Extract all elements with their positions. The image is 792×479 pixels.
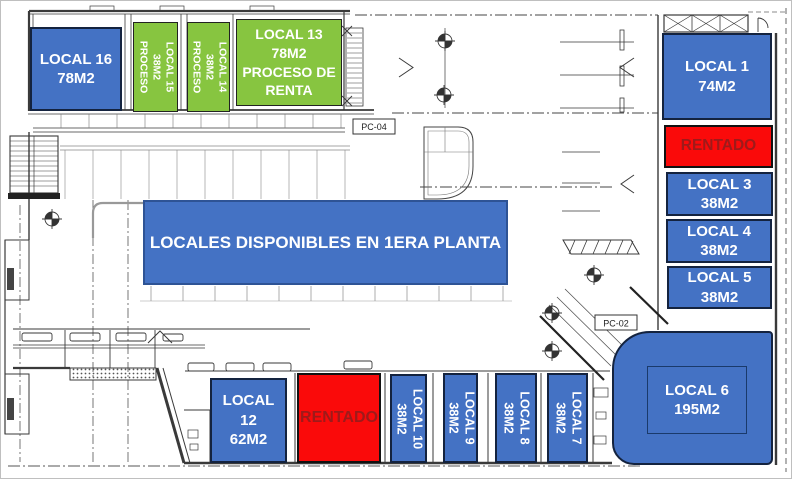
unit-rentado-bottom: RENTADO [297,373,381,463]
banner-title: LOCALES DISPONIBLES EN 1ERA PLANTA [150,233,501,253]
unit-local-6: LOCAL 6 195M2 [612,331,773,465]
unit-name: LOCAL 1 [685,57,749,77]
unit-name: LOCAL 6 [665,381,729,401]
unit-local-16: LOCAL 16 78M2 [30,27,122,111]
unit-local-14: LOCAL 14 38M2 PROCESO [187,22,230,112]
unit-name: LOCAL 16 [40,50,112,70]
unit-area: 38M2 [445,375,461,461]
rented-label: RENTADO [681,136,757,156]
unit-area: 78M2 [57,69,95,89]
availability-banner: LOCALES DISPONIBLES EN 1ERA PLANTA [143,200,508,285]
unit-name: LOCAL 3 [688,175,752,195]
unit-note: PROCESO DE RENTA [237,63,341,101]
unit-area: 78M2 [271,44,306,63]
unit-local-3: LOCAL 3 38M2 [666,172,773,216]
unit-name: LOCAL 10 [409,376,425,461]
unit-local-5: LOCAL 5 38M2 [667,266,772,309]
unit-local-1: LOCAL 1 74M2 [662,33,772,120]
unit-area: 62M2 [230,430,268,450]
unit-name: LOCAL 15 [162,24,175,110]
unit-local-4: LOCAL 4 38M2 [666,219,772,263]
unit-name: LOCAL 12 [219,391,279,430]
rotated-text: LOCAL 10 38M2 [393,376,424,461]
floor-plan: PC-04 PC-02 LOCAL 16 78M2 LOCAL 15 38M2 … [0,0,792,479]
rotated-text: LOCAL 8 38M2 [500,375,531,461]
label-pc-04: PC-04 [361,122,387,132]
unit-note: PROCESO [189,24,202,110]
label-pc-02: PC-02 [603,319,629,329]
unit-area: 38M2 [149,24,162,110]
unit-area: 38M2 [393,376,409,461]
rotated-text: LOCAL 9 38M2 [445,375,476,461]
rented-label: RENTADO [300,408,378,429]
unit-rentado-top: RENTADO [664,125,773,168]
unit-area: 38M2 [202,24,215,110]
unit-area: 38M2 [552,375,568,461]
rotated-text: LOCAL 7 38M2 [552,375,583,461]
unit-area: 38M2 [701,194,739,214]
unit-local-15: LOCAL 15 38M2 PROCESO [133,22,178,112]
unit-local-7: LOCAL 7 38M2 [547,373,588,463]
rotated-text: LOCAL 14 38M2 PROCESO [189,24,228,110]
unit-area: 195M2 [674,400,720,420]
unit-name: LOCAL 8 [516,375,532,461]
unit-name: LOCAL 5 [688,268,752,288]
unit-area: 38M2 [700,241,738,261]
unit-local-8: LOCAL 8 38M2 [495,373,537,463]
rotated-text: LOCAL 15 38M2 PROCESO [136,24,175,110]
unit-local-9: LOCAL 9 38M2 [443,373,478,463]
unit-note: PROCESO [136,24,149,110]
unit-area: 74M2 [698,77,736,97]
unit-area: 38M2 [500,375,516,461]
unit-name: LOCAL 14 [215,24,228,110]
unit-name: LOCAL 4 [687,222,751,242]
unit-area: 38M2 [701,288,739,308]
unit-local-13: LOCAL 13 78M2 PROCESO DE RENTA [236,19,342,106]
unit-name: LOCAL 7 [568,375,584,461]
unit-local-10: LOCAL 10 38M2 [390,374,427,463]
unit-name: LOCAL 9 [461,375,477,461]
unit-local-12: LOCAL 12 62M2 [210,378,287,463]
unit-inner-frame: LOCAL 6 195M2 [647,366,747,434]
unit-name: LOCAL 13 [255,25,322,44]
